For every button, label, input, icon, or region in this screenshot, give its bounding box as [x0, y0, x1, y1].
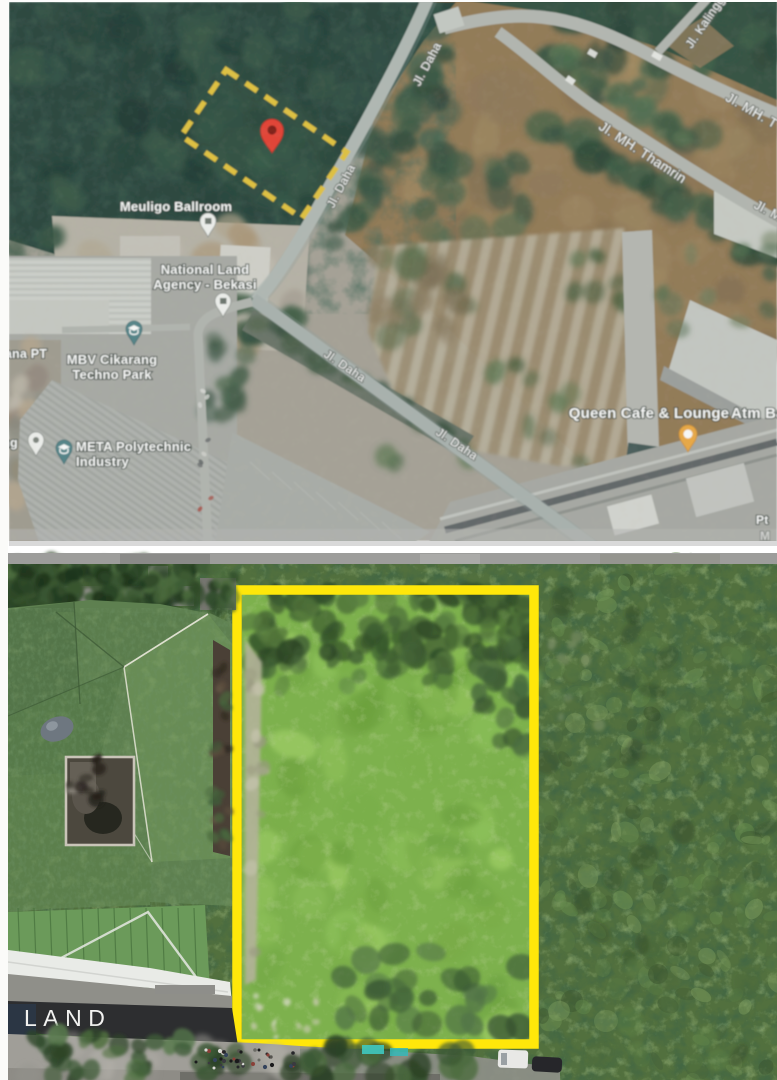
svg-text:LAND: LAND: [24, 1005, 111, 1031]
